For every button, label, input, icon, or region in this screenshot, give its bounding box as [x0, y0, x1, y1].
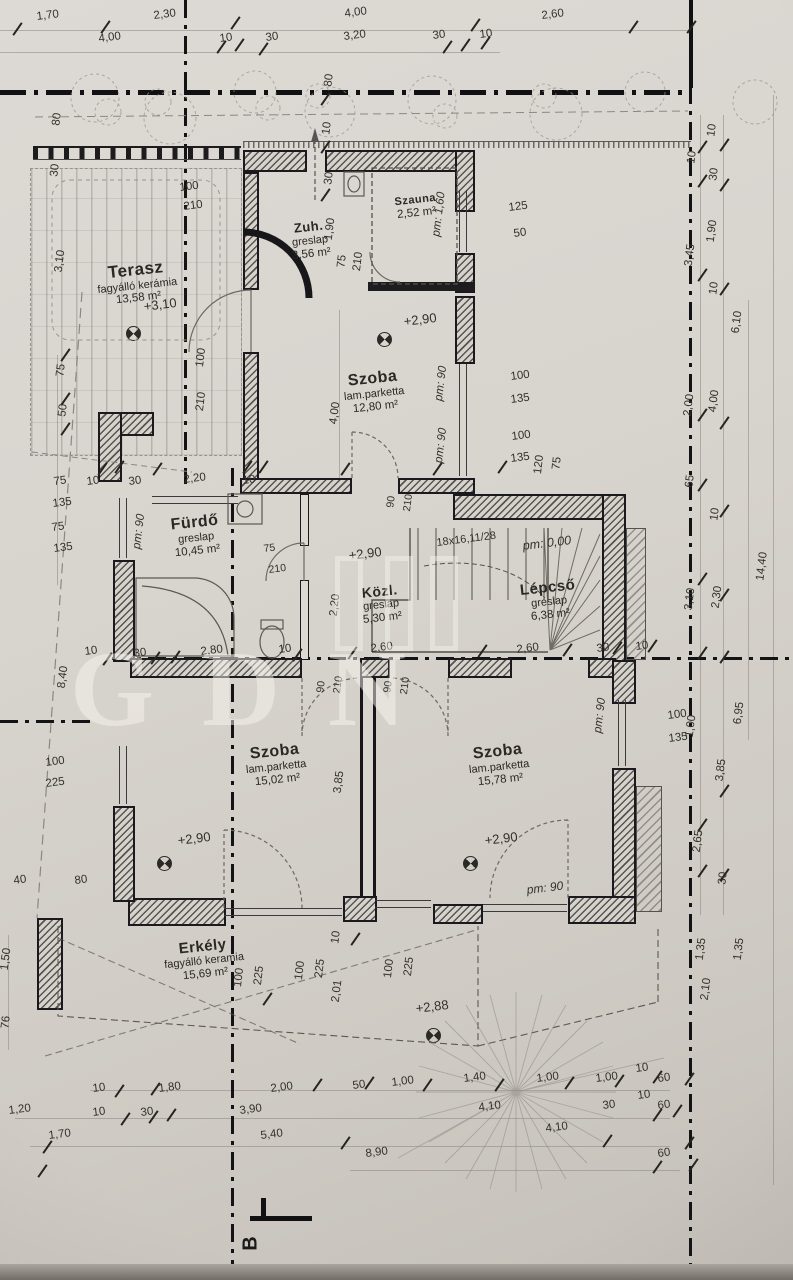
room-label: Szauna2,52 m²	[320, 184, 512, 230]
room-label: Lépcsőgreslap6,38 m²	[452, 569, 645, 632]
room-label: Erkélyfagyálló keramia15,69 m²	[107, 928, 300, 991]
photo-edge	[0, 1264, 793, 1280]
rooms-layer: Teraszfagyálló kerámia13,58 m²Zuh.gresla…	[0, 0, 793, 1280]
room-label: Fürdőgreslap10,45 m²	[99, 504, 293, 568]
room-label: Közl.greslap5,30 m²	[284, 573, 477, 635]
room-label: Teraszfagyálló kerámia13,58 m²	[40, 250, 234, 315]
room-label: Szobalam.parketta15,78 m²	[402, 733, 596, 797]
room-label: Szobalam.parketta12,80 m²	[277, 360, 471, 424]
room-label: Szobalam.parketta15,02 m²	[179, 733, 373, 797]
floor-plan: GDN B 1,702,304,002,604,0010303,20301080…	[0, 0, 793, 1280]
